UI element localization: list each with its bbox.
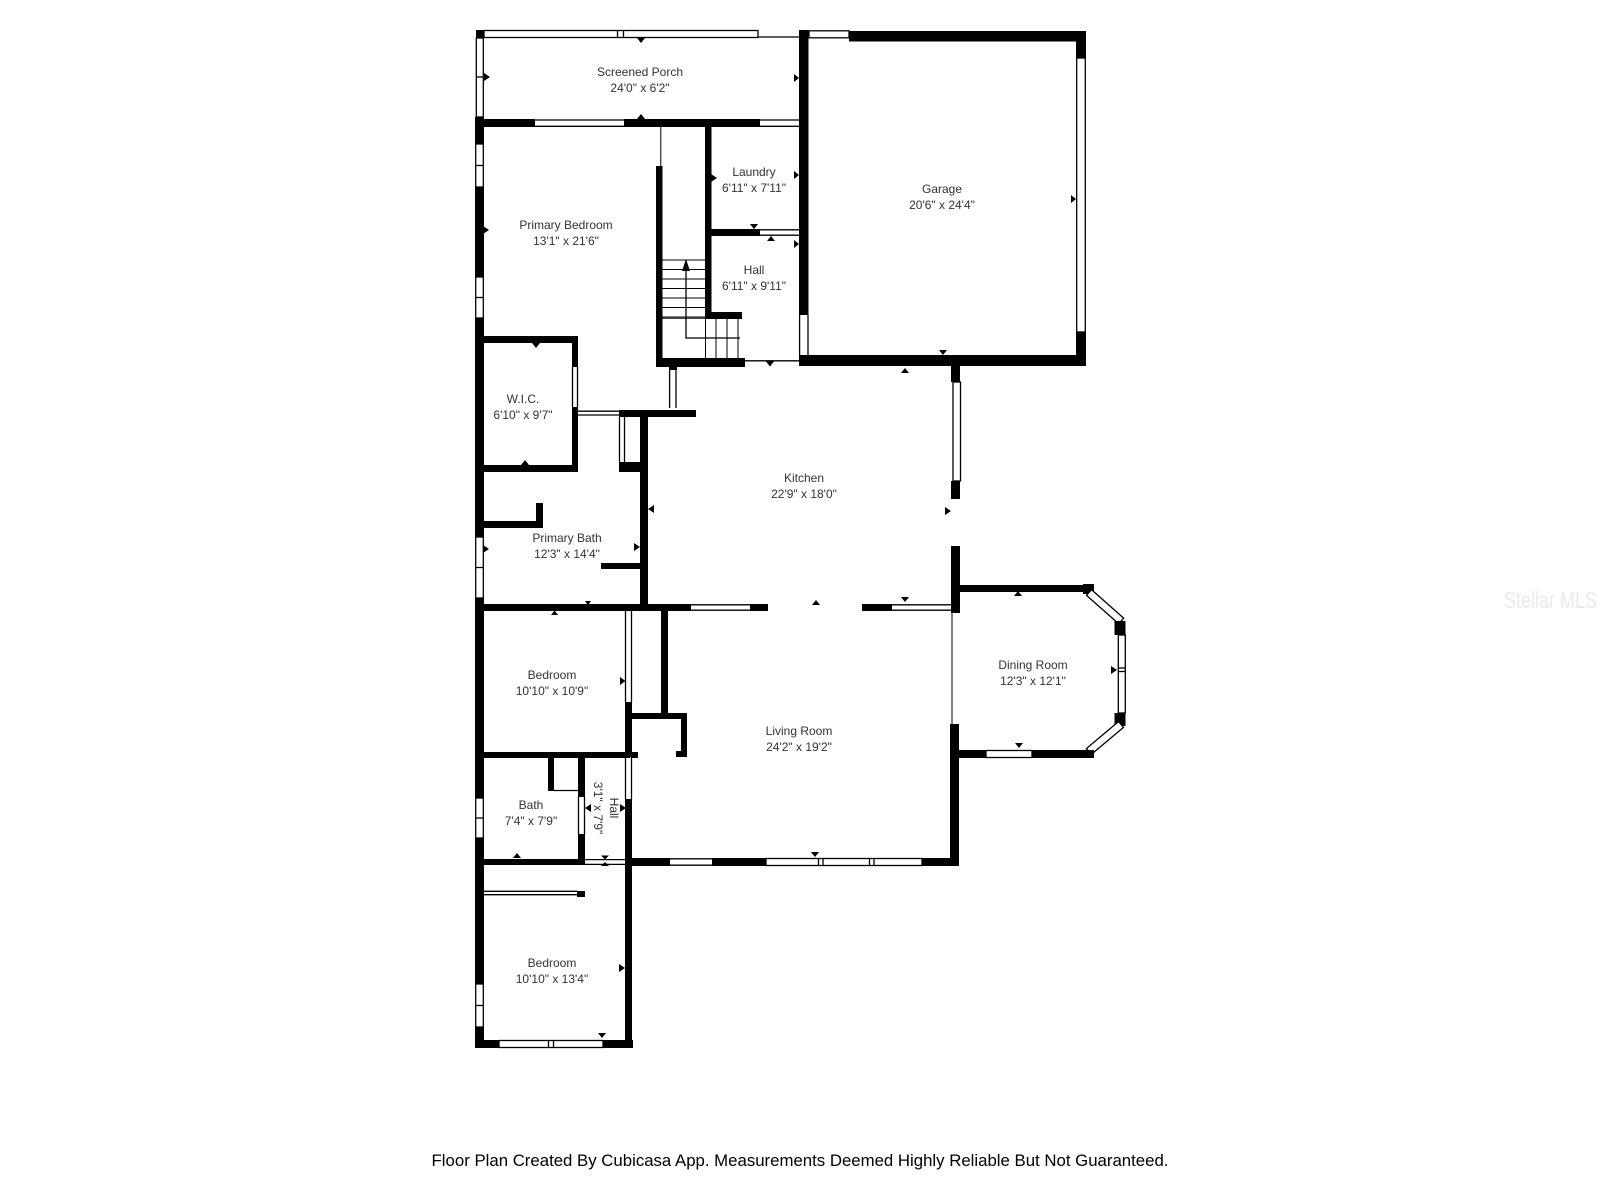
svg-text:Primary Bath: Primary Bath bbox=[532, 531, 601, 545]
svg-text:7'4" x 7'9": 7'4" x 7'9" bbox=[505, 814, 557, 828]
svg-text:Screened Porch: Screened Porch bbox=[597, 65, 683, 79]
svg-text:10'10" x 13'4": 10'10" x 13'4" bbox=[516, 972, 589, 986]
svg-text:6'11" x 9'11": 6'11" x 9'11" bbox=[722, 279, 786, 293]
svg-text:6'11" x 7'11": 6'11" x 7'11" bbox=[722, 181, 786, 195]
svg-text:12'3" x 12'1": 12'3" x 12'1" bbox=[1000, 674, 1066, 688]
svg-text:Hall: Hall bbox=[744, 263, 765, 277]
svg-text:24'0" x 6'2": 24'0" x 6'2" bbox=[610, 81, 669, 95]
svg-text:Bedroom: Bedroom bbox=[528, 956, 577, 970]
svg-text:Living Room: Living Room bbox=[766, 724, 833, 738]
svg-text:20'6" x 24'4": 20'6" x 24'4" bbox=[909, 198, 975, 212]
svg-text:10'10" x 10'9": 10'10" x 10'9" bbox=[516, 684, 589, 698]
svg-text:Primary Bedroom: Primary Bedroom bbox=[519, 218, 612, 232]
svg-text:12'3" x 14'4": 12'3" x 14'4" bbox=[534, 547, 600, 561]
svg-text:13'1" x 21'6": 13'1" x 21'6" bbox=[533, 234, 599, 248]
svg-text:22'9" x 18'0": 22'9" x 18'0" bbox=[771, 487, 837, 501]
svg-text:3'1" x 7'9": 3'1" x 7'9" bbox=[591, 782, 605, 834]
svg-text:24'2" x 19'2": 24'2" x 19'2" bbox=[766, 740, 832, 754]
svg-text:Hall: Hall bbox=[607, 798, 621, 819]
svg-text:Laundry: Laundry bbox=[732, 165, 775, 179]
svg-text:Dining Room: Dining Room bbox=[998, 658, 1067, 672]
svg-text:Kitchen: Kitchen bbox=[784, 471, 824, 485]
svg-text:6'10" x 9'7": 6'10" x 9'7" bbox=[493, 408, 552, 422]
svg-text:Floor Plan Created By Cubicasa: Floor Plan Created By Cubicasa App. Meas… bbox=[432, 1151, 1169, 1170]
svg-text:Bedroom: Bedroom bbox=[528, 668, 577, 682]
svg-text:Bath: Bath bbox=[519, 798, 544, 812]
svg-text:W.I.C.: W.I.C. bbox=[507, 392, 540, 406]
svg-text:Stellar MLS: Stellar MLS bbox=[1504, 587, 1597, 613]
svg-text:Garage: Garage bbox=[922, 182, 962, 196]
